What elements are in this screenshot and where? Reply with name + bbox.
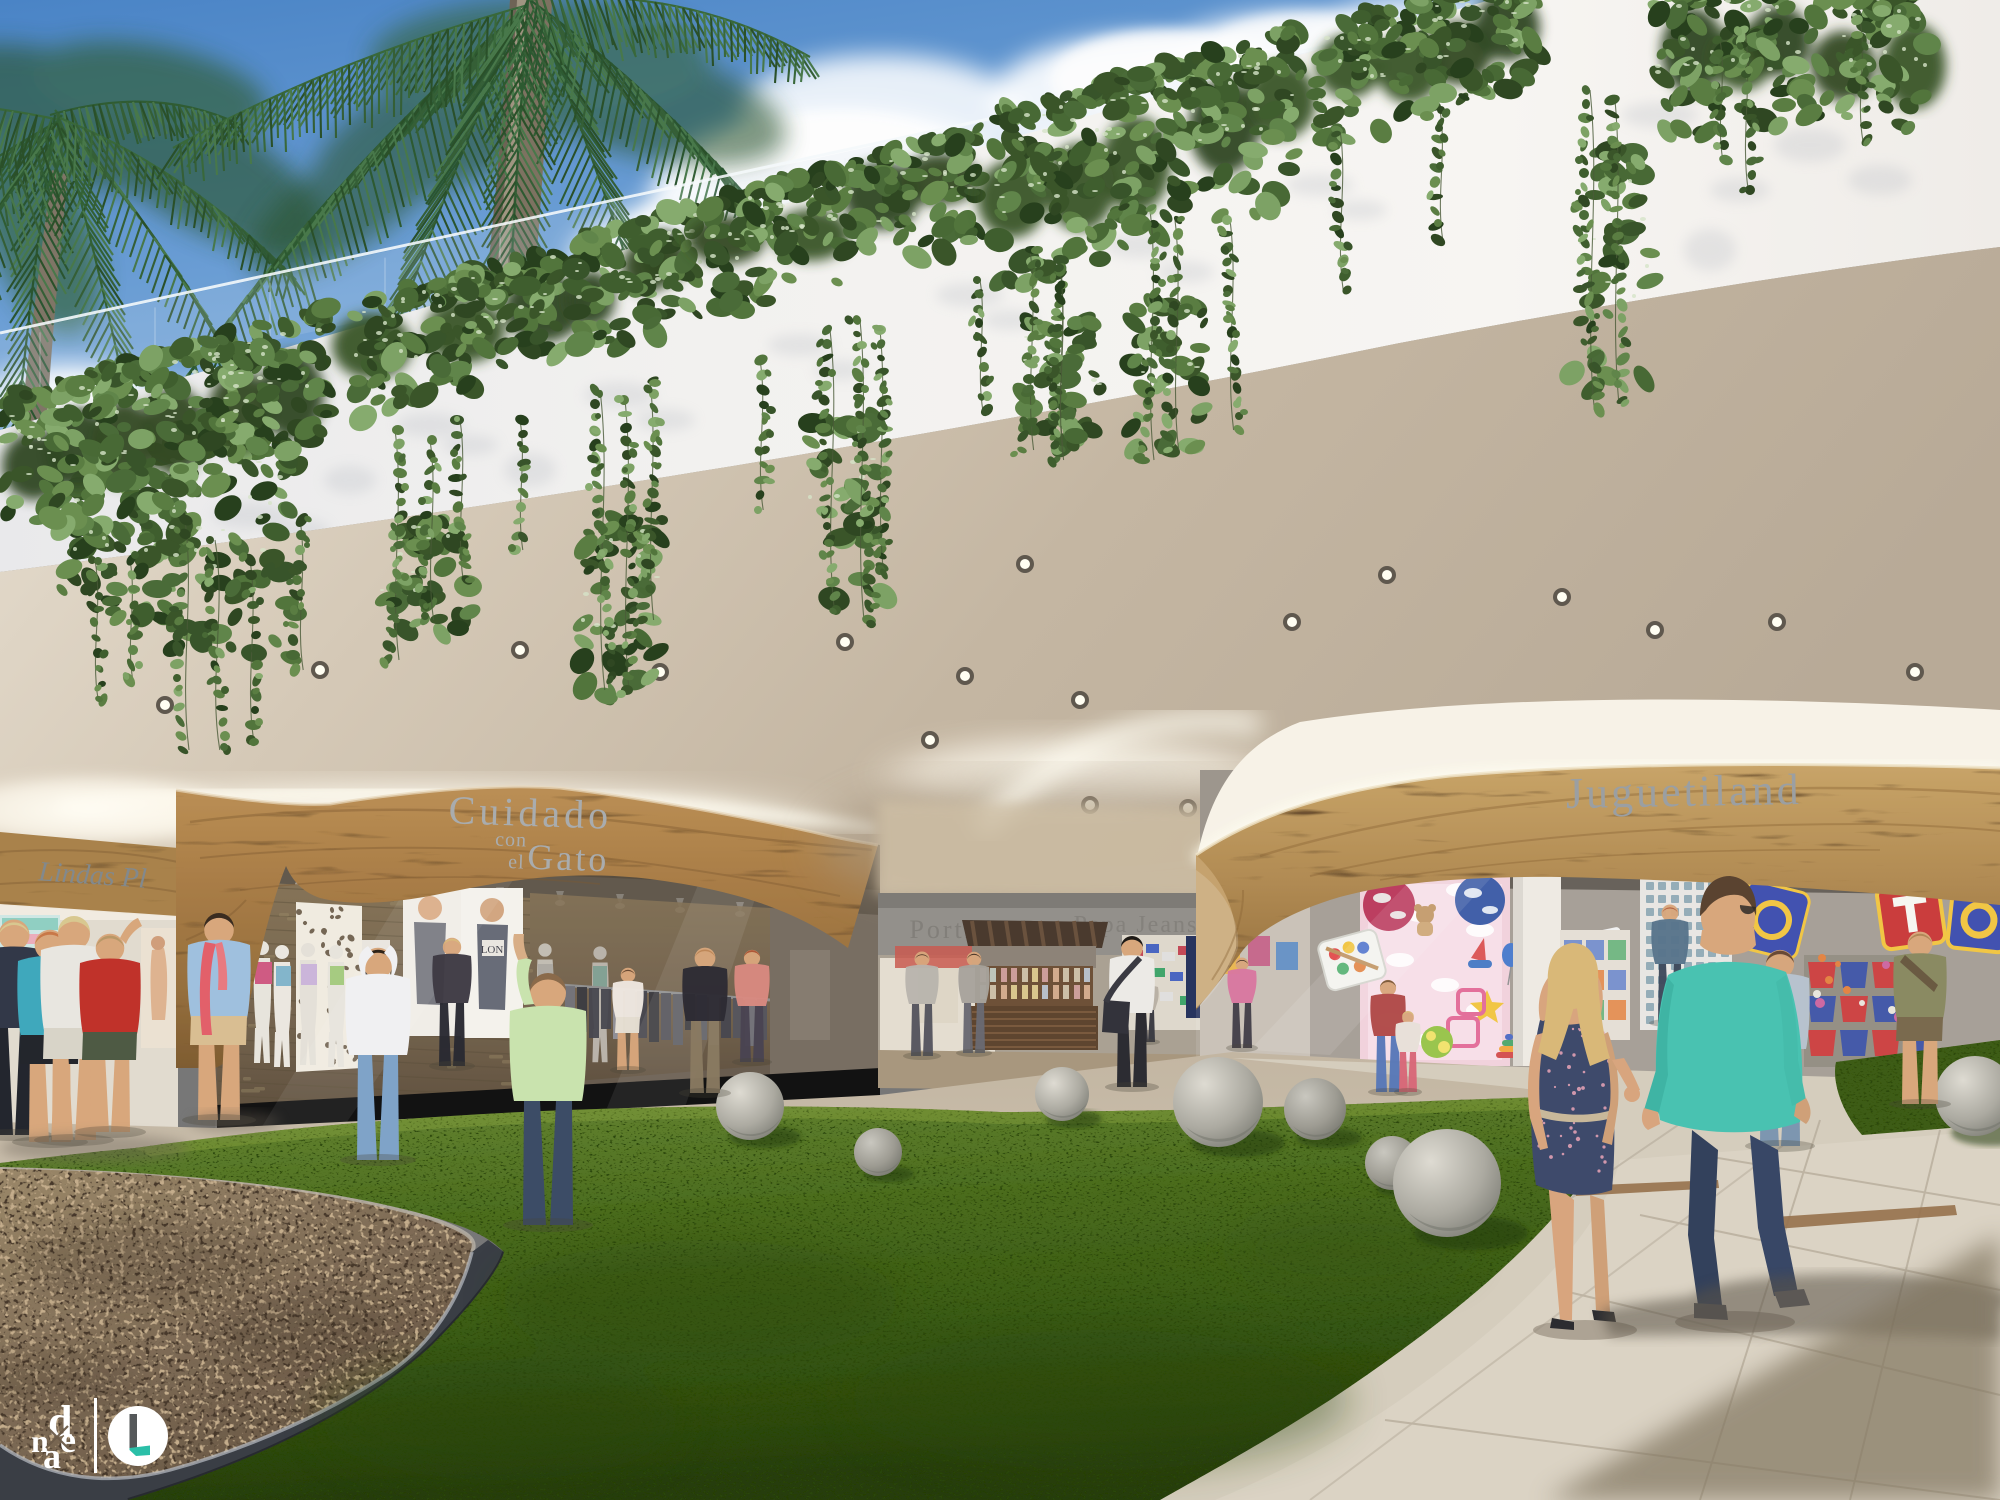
svg-text:Cuidado: Cuidado xyxy=(448,787,613,838)
svg-text:n: n xyxy=(31,1423,49,1459)
svg-text:Juguetiland: Juguetiland xyxy=(1565,765,1802,818)
svg-text:el: el xyxy=(508,851,525,874)
svg-text:Gato: Gato xyxy=(527,837,610,880)
svg-text:con: con xyxy=(495,828,528,851)
